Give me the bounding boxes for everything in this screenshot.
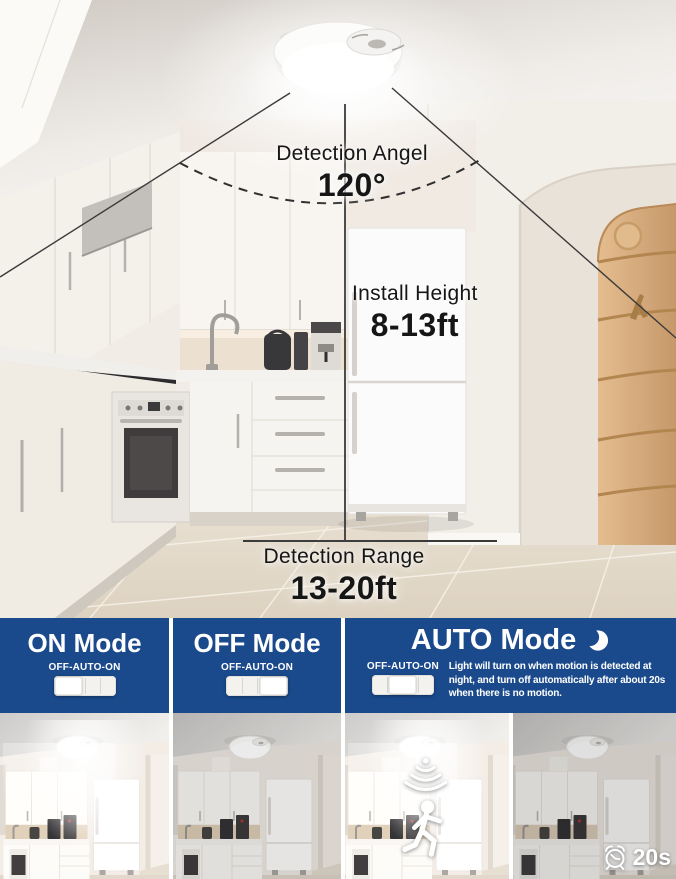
off-mode-switch [226, 676, 288, 696]
install-height-annotation: Install Height 8-13ft [352, 282, 478, 344]
on-mode-photo [0, 713, 169, 879]
alarm-clock-icon [600, 842, 630, 872]
on-switch-label: OFF-AUTO-ON [48, 662, 120, 673]
hero-kitchen-photo: Detection Angel 120° Install Height 8-13… [0, 0, 676, 618]
auto-desc-line-3: when there is no motion. [449, 687, 676, 701]
install-height-label: Install Height [352, 282, 478, 306]
switch-knob [55, 677, 82, 695]
auto-mode-panel: AUTO Mode OFF-AUTO-ON Light will turn on… [345, 618, 676, 879]
off-mode-panel: OFF Mode OFF-AUTO-ON [173, 618, 341, 879]
off-mode-title: OFF Mode [193, 629, 320, 657]
auto-off-timer: 20s [600, 842, 671, 872]
detection-angle-value: 120° [276, 167, 428, 204]
kitchen-photo-light-off [173, 713, 341, 879]
switch-knob [260, 677, 287, 695]
detection-range-annotation: Detection Range 13-20ft [264, 545, 425, 607]
on-mode-header: ON Mode OFF-AUTO-ON [0, 618, 169, 713]
auto-switch-label: OFF-AUTO-ON [367, 661, 439, 672]
detection-cone-line-left [0, 93, 290, 277]
auto-mode-description: Light will turn on when motion is detect… [449, 660, 676, 701]
crescent-moon-icon [583, 627, 610, 654]
detection-angle-label: Detection Angel [276, 142, 428, 166]
auto-mode-controls: OFF-AUTO-ON Light will turn on when moti… [345, 656, 676, 701]
kitchen-photo-light-on [0, 713, 169, 879]
auto-mode-title: AUTO Mode [411, 626, 610, 654]
on-mode-switch [54, 676, 116, 696]
detection-angle-annotation: Detection Angel 120° [276, 142, 428, 204]
auto-mode-switch [372, 675, 434, 695]
off-switch-label: OFF-AUTO-ON [221, 662, 293, 673]
auto-motion-photo [345, 713, 509, 879]
auto-desc-line-2: night, and turn off automatically after … [449, 674, 676, 688]
on-mode-panel: ON Mode OFF-AUTO-ON [0, 618, 169, 879]
switch-knob [389, 676, 416, 694]
auto-mode-title-text: AUTO Mode [411, 626, 576, 654]
product-infographic: Detection Angel 120° Install Height 8-13… [0, 0, 676, 879]
auto-mode-photos: 20s [345, 713, 676, 879]
auto-mode-header: AUTO Mode OFF-AUTO-ON Light will turn on… [345, 618, 676, 713]
auto-desc-line-1: Light will turn on when motion is detect… [449, 660, 676, 674]
off-mode-header: OFF Mode OFF-AUTO-ON [173, 618, 341, 713]
timer-value: 20s [633, 844, 671, 871]
motion-person-icon [393, 755, 459, 864]
off-mode-photo [173, 713, 341, 879]
annotation-lines [0, 0, 676, 618]
on-mode-title: ON Mode [27, 629, 141, 657]
install-height-value: 8-13ft [352, 307, 478, 344]
auto-timer-photo: 20s [513, 713, 676, 879]
detection-range-value: 13-20ft [264, 570, 425, 607]
detection-range-label: Detection Range [264, 545, 425, 569]
